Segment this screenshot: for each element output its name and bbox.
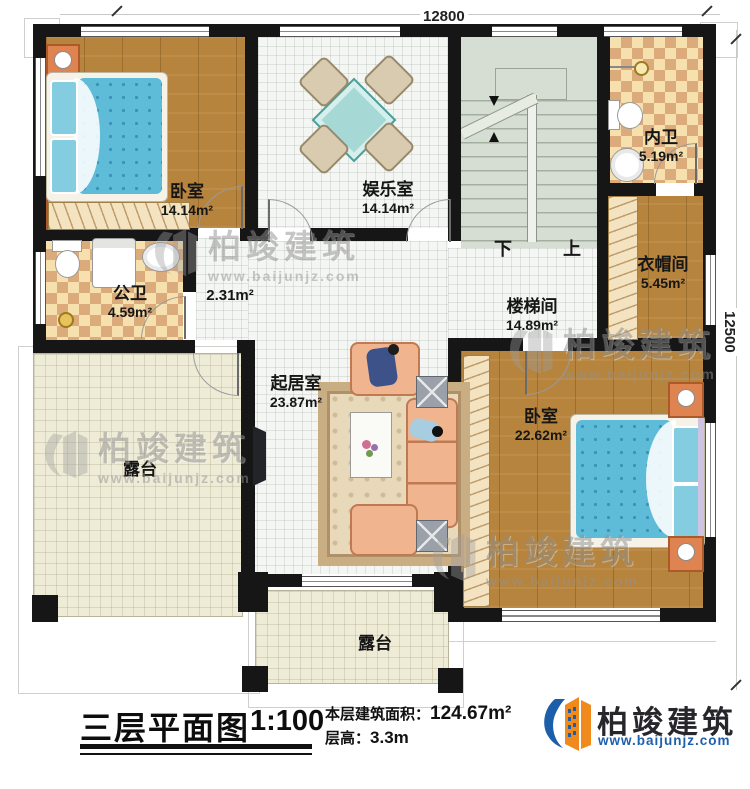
- stairwell-label: 楼梯间 14.89m²: [492, 296, 572, 335]
- flowers: [362, 440, 371, 449]
- sofa: [350, 504, 418, 556]
- wall-bedroom1-bottom: [240, 228, 258, 241]
- headboard: [698, 418, 704, 544]
- room-name: 公卫: [90, 283, 170, 304]
- coffee-table: [350, 412, 392, 478]
- floor-drain: [58, 312, 74, 328]
- window: [502, 610, 660, 622]
- floor-area-line: 本层建筑面积：124.67m²: [325, 703, 511, 725]
- wall-living-bottom: [268, 574, 302, 587]
- brand-website: www.baijunjz.com: [598, 733, 731, 748]
- title-underline: [80, 744, 312, 749]
- stair-divider: [527, 95, 537, 242]
- floor-area-value: 124.67m²: [430, 703, 511, 724]
- wall-living-bottom-pier: [434, 572, 464, 612]
- dimension-label-top: 12800: [420, 8, 468, 25]
- person-head: [388, 344, 399, 355]
- window: [705, 255, 716, 325]
- window: [705, 423, 716, 537]
- towel-bar: [610, 66, 636, 68]
- room-area: 4.59m²: [90, 304, 170, 322]
- eave-line-bottom: [448, 641, 716, 642]
- sliding-door: [302, 576, 412, 587]
- dimension-label-right: 12500: [721, 308, 738, 356]
- entertainment-label: 娱乐室 14.14m²: [348, 179, 428, 218]
- terrace-bottom-label: 露台: [335, 633, 415, 654]
- wall-bedroom2-bottom: [660, 608, 716, 622]
- room-area: 14.14m²: [147, 202, 227, 220]
- wall-living-left: [241, 340, 255, 574]
- window: [35, 252, 46, 324]
- room-name: 内卫: [621, 127, 701, 148]
- bedroom2-label: 卧室 22.62m²: [501, 406, 581, 445]
- toilet-bowl: [55, 250, 80, 278]
- living-label: 起居室 23.87m²: [256, 373, 336, 412]
- terrace-pier: [32, 595, 58, 622]
- wall-inner-bath-bottom: [610, 183, 656, 196]
- wall-bedroom1-right: [245, 24, 258, 241]
- wall-inner-bath-bottom: [694, 183, 703, 196]
- tv: [253, 426, 266, 486]
- room-name: 衣帽间: [623, 254, 703, 275]
- window: [280, 26, 400, 37]
- public-bath-label: 公卫 4.59m²: [90, 283, 170, 322]
- wall-terrace-top: [33, 340, 195, 353]
- stair-arrow-down: [489, 96, 499, 106]
- stair-up-label: 上: [556, 238, 588, 261]
- hallway-label: 2.31m²: [195, 287, 265, 306]
- inner-bath-label: 内卫 5.19m²: [621, 127, 701, 166]
- sink: [142, 242, 180, 272]
- window: [81, 26, 209, 37]
- side-table: [416, 520, 448, 552]
- floor-height-value: 3.3m: [370, 728, 409, 747]
- room-area: 23.87m²: [256, 394, 336, 412]
- stair-arrow-up: [489, 132, 499, 142]
- side-table: [416, 376, 448, 408]
- room-name: 卧室: [147, 181, 227, 202]
- title-underline-thin: [80, 753, 312, 755]
- room-name: 起居室: [256, 373, 336, 394]
- person-head: [432, 426, 443, 437]
- terrace-left-label: 露台: [100, 459, 180, 480]
- window: [35, 58, 46, 176]
- pillow: [50, 138, 78, 194]
- dimension-line-right: [736, 30, 737, 690]
- toilet-bowl: [617, 102, 643, 129]
- window: [492, 26, 557, 37]
- nightstand: [668, 382, 704, 418]
- room-area: 14.14m²: [348, 200, 428, 218]
- room-area: 14.89m²: [492, 317, 572, 335]
- dimension-line-top: [60, 14, 720, 15]
- room-name: 楼梯间: [492, 296, 572, 317]
- window: [604, 26, 682, 37]
- bedroom1-label: 卧室 14.14m²: [147, 181, 227, 220]
- room-name: 露台: [335, 633, 415, 654]
- wall-public-bath-right: [183, 238, 196, 292]
- wall-entertainment-bottom: [310, 228, 408, 241]
- plan-title: 三层平面图: [80, 703, 250, 749]
- wall-bedroom2-top: [448, 338, 523, 351]
- room-area: 2.31m²: [195, 287, 265, 306]
- room-area: 5.45m²: [623, 275, 703, 293]
- cloakroom-label: 衣帽间 5.45m²: [623, 254, 703, 293]
- wall-living-bottom-pier: [238, 572, 268, 612]
- room-name: 露台: [100, 459, 180, 480]
- room-area: 22.62m²: [501, 427, 581, 445]
- washing-machine: [92, 238, 136, 288]
- nightstand: [668, 536, 704, 572]
- terrace-pier: [438, 668, 463, 693]
- pillow: [50, 80, 78, 136]
- brand-logo-icon: [540, 691, 592, 755]
- floor-height-line: 层高：3.3m: [325, 727, 409, 748]
- floor-plan-page: 12800 12500: [0, 0, 750, 789]
- room-name: 卧室: [501, 406, 581, 427]
- plan-scale: 1:100: [250, 705, 324, 738]
- terrace-pier: [242, 666, 268, 692]
- stair-down-label: 下: [487, 238, 519, 261]
- room-name: 娱乐室: [348, 179, 428, 200]
- wall-entertainment-bottom: [258, 228, 268, 241]
- terrace-left-floor: [33, 353, 243, 617]
- floor-height-label: 层高：: [325, 730, 370, 747]
- towel-ring: [634, 61, 649, 76]
- room-area: 5.19m²: [621, 148, 701, 166]
- floor-area-label: 本层建筑面积：: [325, 706, 430, 723]
